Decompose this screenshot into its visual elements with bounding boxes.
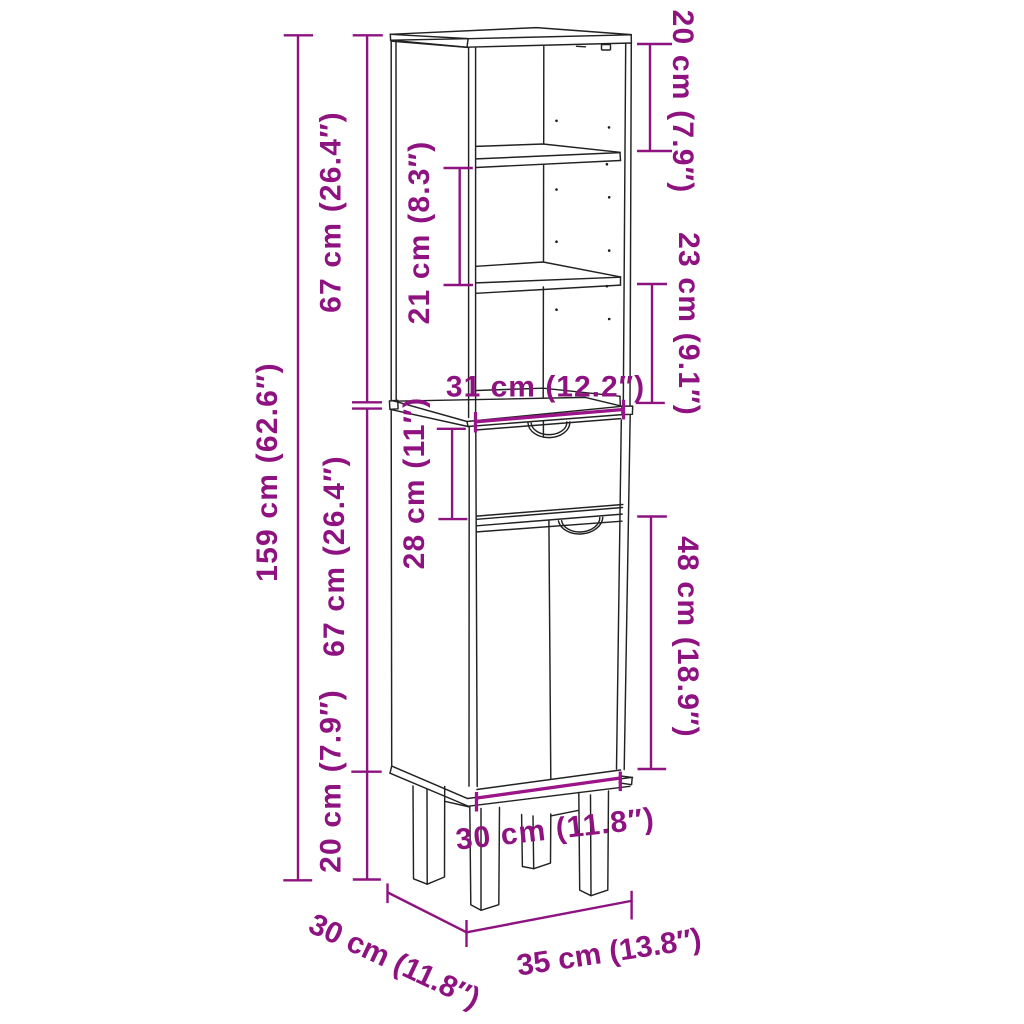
- svg-text:28 cm (11″): 28 cm (11″): [398, 397, 431, 570]
- svg-text:159 cm (62.6″): 159 cm (62.6″): [251, 362, 284, 582]
- svg-text:21 cm (8.3″): 21 cm (8.3″): [403, 141, 436, 325]
- svg-text:67 cm (26.4″): 67 cm (26.4″): [315, 111, 348, 313]
- svg-text:31 cm (12.2″): 31 cm (12.2″): [446, 371, 645, 404]
- svg-text:20 cm (7.9″): 20 cm (7.9″): [666, 10, 699, 194]
- svg-text:48 cm (18.9″): 48 cm (18.9″): [671, 536, 704, 738]
- svg-text:20 cm (7.9″): 20 cm (7.9″): [315, 689, 348, 873]
- svg-text:67 cm (26.4″): 67 cm (26.4″): [318, 455, 351, 657]
- svg-text:23 cm (9.1″): 23 cm (9.1″): [672, 232, 705, 416]
